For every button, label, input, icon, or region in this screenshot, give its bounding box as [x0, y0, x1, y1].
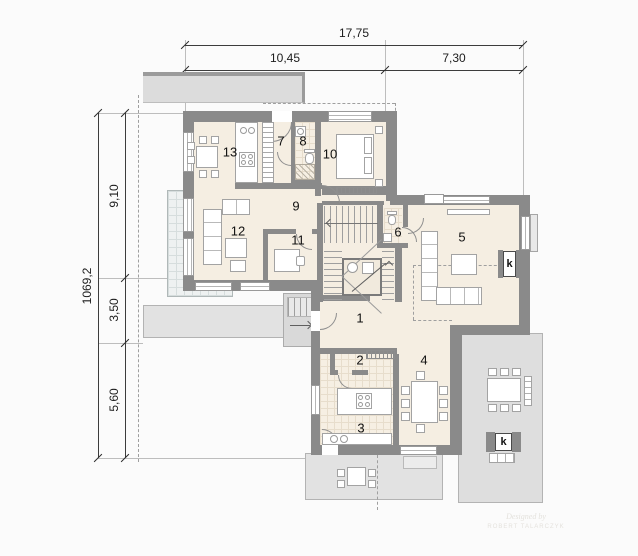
pillow: [364, 157, 372, 174]
dimension-line-left-total: [98, 113, 99, 458]
chair: [211, 170, 219, 178]
partition: [352, 370, 368, 375]
room-label-9: 9: [292, 199, 299, 214]
partition: [330, 370, 338, 375]
dimension-line-top-segments: [185, 70, 523, 71]
sofa: [203, 209, 222, 265]
rear-terrace: [458, 333, 543, 503]
chair: [416, 371, 425, 380]
dim-left-seg2: 3,50: [107, 298, 121, 321]
entry-steps: [287, 297, 314, 317]
room-label-6: 6: [394, 225, 401, 240]
patio-table: [347, 467, 366, 486]
coffee-table: [230, 260, 246, 272]
lower-stairs-left: [324, 250, 342, 300]
nightstand: [375, 126, 383, 134]
partition: [317, 203, 323, 302]
lower-stairs-right: [382, 250, 394, 300]
sink-bowl: [340, 435, 348, 443]
wardrobe-hatch: [336, 187, 377, 194]
chair: [439, 412, 448, 421]
burner: [248, 154, 253, 159]
coffee-table: [451, 254, 477, 275]
room-label-4: 4: [420, 353, 427, 368]
burner: [241, 154, 246, 159]
sink-bowl: [240, 127, 247, 134]
openplan-dashed: [413, 320, 452, 321]
chair: [211, 136, 219, 144]
doormat: [403, 456, 437, 469]
tv-board: [447, 209, 490, 215]
wardrobe-hatch: [366, 350, 395, 359]
patio-chair: [512, 404, 521, 412]
window: [183, 132, 194, 172]
patio-chair: [337, 480, 345, 488]
window: [240, 282, 270, 291]
room-label-13: 13: [223, 145, 237, 160]
room-label-1: 1: [356, 311, 363, 326]
floor-plan: 17,75 10,45 7,30 1069,2 9,10 3,50 5,60: [0, 0, 638, 556]
toilet-bowl: [305, 153, 314, 164]
watermark-line1: Designed by: [468, 512, 584, 522]
extension-line: [98, 113, 183, 114]
door-gap: [272, 111, 292, 122]
dining-table: [411, 381, 438, 423]
dimension-line-left-segments: [125, 113, 126, 458]
extension-line: [98, 278, 167, 279]
window-bay: [530, 214, 538, 252]
chair: [199, 136, 207, 144]
extension-line: [523, 40, 524, 200]
door-gap: [322, 445, 338, 455]
pillow: [364, 137, 372, 154]
door-gap: [311, 311, 320, 331]
patio-chair: [500, 368, 509, 376]
partition: [395, 248, 402, 302]
grill-marker: k: [495, 433, 512, 451]
patio-chair: [500, 404, 509, 412]
dimension-line-top-total: [185, 45, 523, 46]
terrace-dashed-line: [377, 455, 378, 510]
burner: [241, 160, 246, 165]
burner: [248, 160, 253, 165]
patio-table: [487, 378, 521, 402]
burner: [365, 395, 370, 400]
window: [521, 216, 530, 250]
wall: [450, 325, 530, 335]
fireplace-side: [516, 250, 521, 278]
room-label-12: 12: [231, 224, 245, 239]
burner: [358, 395, 363, 400]
dining-table: [196, 146, 218, 168]
wall: [450, 333, 462, 455]
fireplace-marker: k: [503, 251, 516, 277]
chair: [416, 424, 425, 433]
terrace-sliding-door: [400, 446, 437, 455]
sink-bowl: [248, 127, 255, 134]
carport-roof-band: [143, 72, 305, 103]
extension-line: [98, 343, 143, 344]
patio-chair: [337, 469, 345, 477]
sink-bowl: [330, 435, 338, 443]
room-label-7: 7: [277, 134, 284, 149]
partition: [393, 354, 399, 445]
upper-floor-outline-dashed: [263, 103, 395, 104]
window: [311, 385, 320, 415]
chair: [199, 170, 207, 178]
washbasin: [383, 233, 392, 242]
chair: [187, 156, 195, 164]
shaft-fixture-round: [347, 262, 358, 273]
entry-walkway: [143, 305, 288, 338]
grill-bench: [489, 453, 515, 463]
extension-line: [98, 458, 305, 459]
patio-chair: [368, 469, 376, 477]
chimney-block: [424, 194, 444, 204]
room-label-2: 2: [356, 353, 363, 368]
chair: [439, 399, 448, 408]
patio-chair: [488, 368, 497, 376]
armchair: [225, 238, 247, 258]
tall-cabinets: [262, 122, 274, 183]
dim-top-seg2: 7,30: [442, 51, 465, 65]
watermark-line2: ROBERT TALARCZYK: [468, 522, 584, 532]
desk-chair: [296, 256, 305, 266]
openplan-dashed: [413, 265, 414, 320]
partition: [263, 229, 268, 287]
window: [183, 198, 194, 232]
burner: [365, 402, 370, 407]
dim-top-total: 17,75: [339, 26, 369, 40]
patio-chair: [488, 404, 497, 412]
grill-side: [512, 432, 521, 452]
chair: [401, 399, 410, 408]
dim-left-total: 1069,2: [80, 268, 94, 305]
patio-chair: [368, 480, 376, 488]
partition: [291, 180, 321, 184]
room-label-11: 11: [291, 233, 305, 248]
designer-watermark: Designed by ROBERT TALARCZYK: [468, 512, 584, 536]
chair: [401, 412, 410, 421]
dim-left-seg1: 9,10: [107, 184, 121, 207]
partition: [377, 243, 408, 248]
sofa: [436, 287, 482, 305]
chair: [401, 386, 410, 395]
sofa: [222, 199, 250, 215]
shower-hatch: [295, 164, 315, 180]
toilet-bowl: [388, 215, 396, 225]
window: [328, 111, 372, 122]
room-label-8: 8: [299, 134, 306, 149]
grill-side: [486, 432, 495, 452]
dim-left-seg3: 5,60: [107, 388, 121, 411]
patio-chair: [512, 368, 521, 376]
boundary-dashed-line: [138, 95, 139, 462]
room-label-5: 5: [458, 230, 465, 245]
window: [183, 238, 194, 276]
room-label-3: 3: [357, 421, 364, 436]
chair: [439, 386, 448, 395]
burner: [358, 402, 363, 407]
chair: [187, 142, 195, 150]
dim-top-seg1: 10,45: [270, 51, 300, 65]
nightstand: [375, 179, 383, 187]
window: [195, 282, 232, 291]
patio-bench: [524, 376, 532, 406]
room-label-10: 10: [323, 147, 337, 162]
